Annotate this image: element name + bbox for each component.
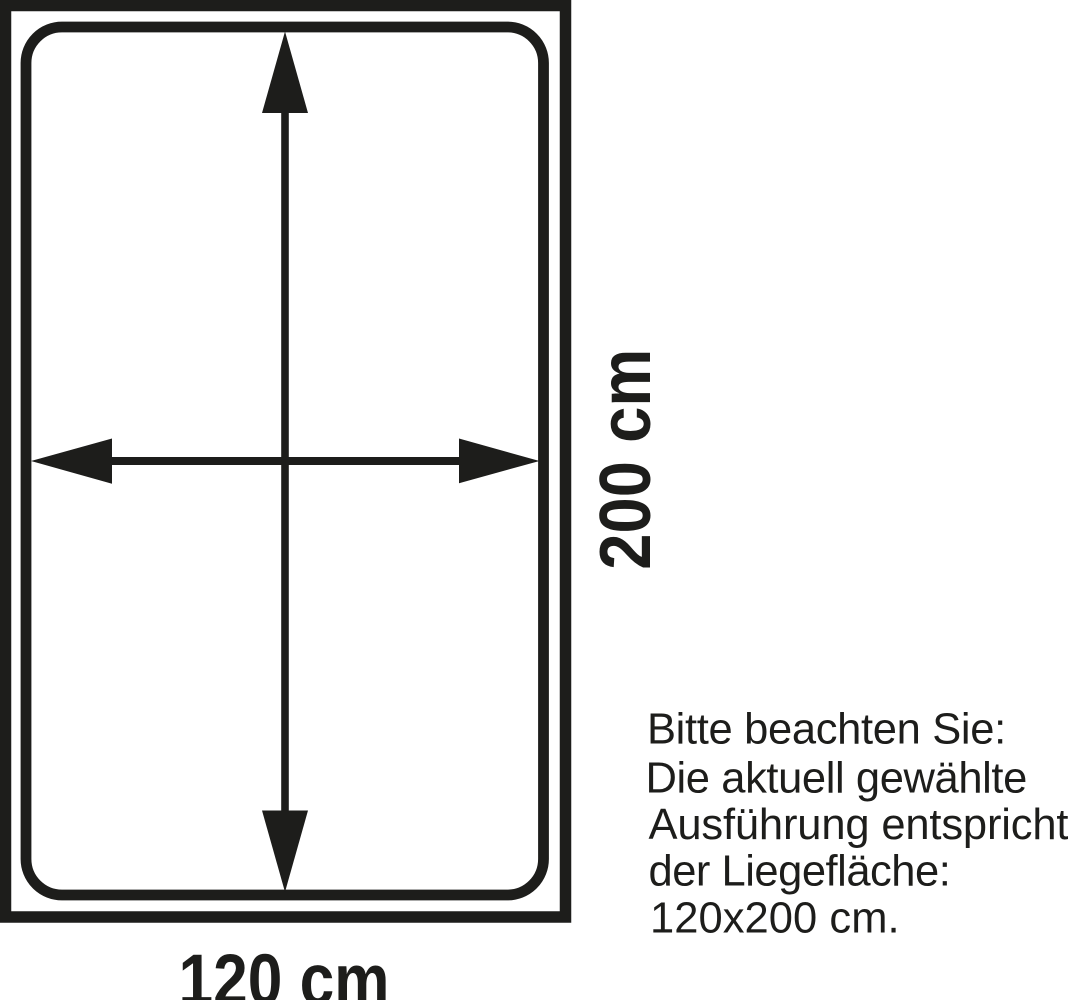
svg-text:120x200 cm.: 120x200 cm. xyxy=(650,894,900,942)
svg-text:der Liegefläche:: der Liegefläche: xyxy=(649,848,951,896)
svg-text:120 cm: 120 cm xyxy=(179,941,390,1000)
svg-text:Ausführung entspricht: Ausführung entspricht xyxy=(649,801,1068,849)
svg-text:Bitte beachten Sie:: Bitte beachten Sie: xyxy=(647,706,1006,754)
svg-text:200 cm: 200 cm xyxy=(586,349,666,570)
svg-text:Die aktuell gewählte: Die aktuell gewählte xyxy=(646,754,1028,802)
